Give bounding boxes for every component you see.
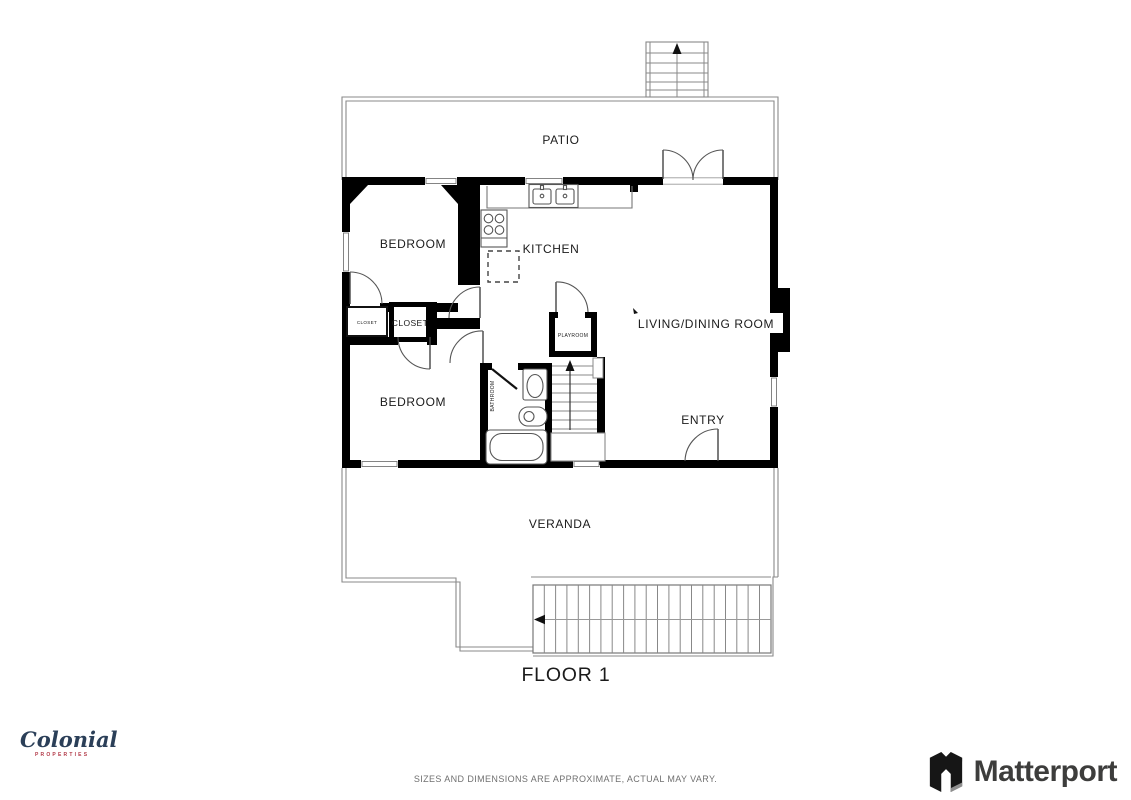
patio-stairs [646,42,708,97]
label-kitchen: KITCHEN [523,242,580,256]
veranda-stairs [533,585,771,653]
radiator [593,358,603,378]
label-closet-small: CLOSET [357,320,377,325]
colonial-subtext: PROPERTIES [20,752,100,758]
matterport-wordmark: Matterport [974,755,1117,789]
matterport-logo: Matterport [927,751,1117,793]
label-bedroom-bottom: BEDROOM [380,395,446,409]
kitchen-fixtures [481,185,632,283]
kitchen-island-dashed [488,251,519,282]
label-living-dining: LIVING/DINING ROOM [638,317,774,331]
label-entry: ENTRY [681,413,724,427]
label-playroom: PLAYROOM [558,333,588,339]
cursor-artifact [633,308,638,314]
floor-plan-page: PATIO BEDROOM KITCHEN LIVING/DINING ROOM… [0,0,1131,800]
label-bathroom: BATHROOM [490,381,496,412]
label-veranda: VERANDA [529,517,591,531]
label-patio: PATIO [542,133,579,147]
matterport-m-icon [927,751,965,793]
colonial-wordmark: Colonial [20,729,100,751]
floor-plan-drawing: PATIO BEDROOM KITCHEN LIVING/DINING ROOM… [0,0,1131,800]
floor-title: FLOOR 1 [521,664,610,686]
interior-stairs [551,358,605,461]
label-closet-large: CLOSET [392,318,428,328]
colonial-properties-logo: Colonial PROPERTIES [20,729,100,758]
label-bedroom-top: BEDROOM [380,237,446,251]
